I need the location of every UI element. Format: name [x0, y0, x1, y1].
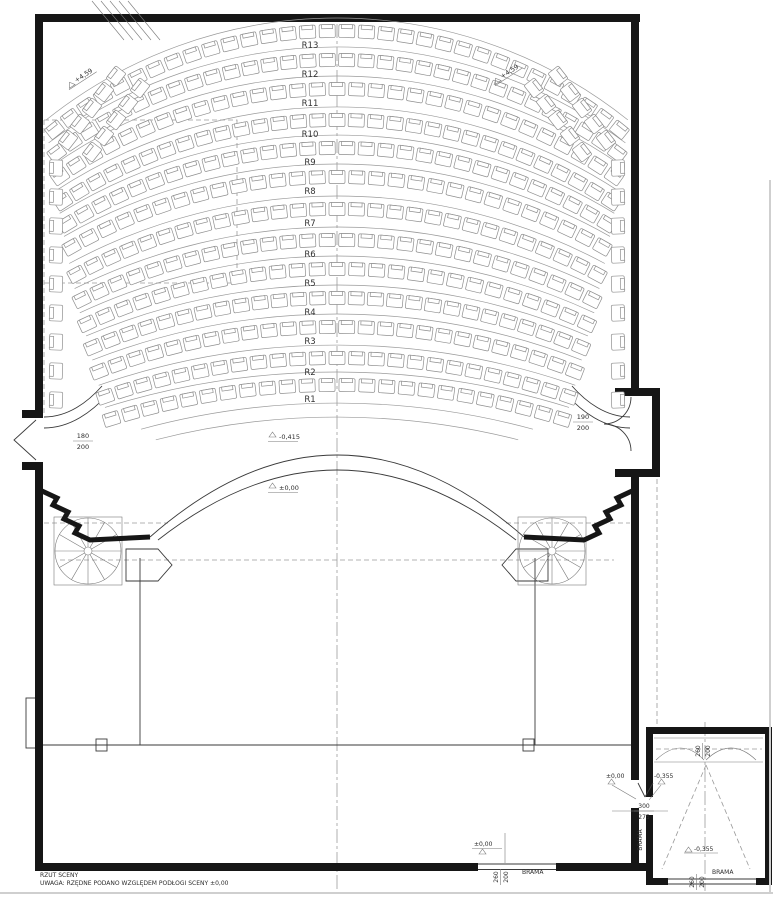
- seat: [175, 222, 194, 239]
- seat: [418, 383, 435, 398]
- seat: [229, 269, 247, 284]
- seat: [271, 293, 288, 307]
- seat: [465, 363, 483, 379]
- seat: [249, 175, 267, 190]
- seat: [611, 305, 625, 321]
- stage-rear-height: 200: [503, 871, 510, 883]
- seat: [163, 255, 182, 272]
- seat: [79, 228, 99, 247]
- seat: [415, 60, 433, 76]
- seat: [309, 83, 326, 97]
- proscenium-steps-left: [42, 491, 150, 540]
- seat: [518, 119, 538, 137]
- seat: [568, 172, 588, 191]
- plan-canvas: R1R2R3R4R5R6R7R8R9R10R11R12R13 +4,59 +4,…: [0, 0, 773, 900]
- seat: [424, 121, 442, 137]
- seat: [127, 179, 147, 197]
- seat: [473, 250, 492, 267]
- seat: [240, 239, 258, 254]
- seat: [121, 405, 140, 422]
- dock-bottom-width: 260: [689, 876, 696, 888]
- seat: [368, 171, 385, 185]
- seat: [171, 192, 190, 209]
- seat: [289, 171, 306, 185]
- dimension-lines: [73, 422, 718, 863]
- drawing-title: RZUT SCENY: [40, 872, 79, 879]
- seat: [194, 304, 212, 320]
- seat: [499, 228, 518, 245]
- seat: [553, 248, 573, 266]
- seat: [269, 85, 286, 100]
- seat: [211, 360, 229, 375]
- seat: [221, 242, 239, 258]
- seat: [299, 142, 316, 156]
- dock-wall-left-lower: [646, 815, 653, 885]
- seat: [213, 125, 232, 141]
- seat: [230, 91, 248, 107]
- seat: [387, 85, 404, 100]
- row-label: R2: [304, 368, 315, 378]
- seat: [473, 335, 491, 351]
- gate-passage-text: BRAMA: [637, 828, 644, 850]
- seat: [611, 392, 625, 408]
- seat: [503, 372, 522, 389]
- left-door-jamb-top: [22, 410, 43, 418]
- seat: [154, 112, 174, 130]
- seat: [535, 241, 555, 259]
- seat: [329, 171, 345, 184]
- seat: [476, 392, 494, 408]
- seat: [367, 203, 384, 217]
- seat: [66, 265, 86, 284]
- dock-top-height: 200: [705, 745, 712, 757]
- seat: [156, 228, 175, 245]
- seat: [133, 293, 152, 311]
- seat: [251, 207, 269, 222]
- seat: [183, 160, 202, 177]
- seat: [194, 130, 213, 147]
- seat: [91, 195, 111, 214]
- seat: [587, 156, 607, 176]
- seat: [232, 121, 250, 137]
- level-flag-icon: [67, 80, 76, 88]
- seat: [290, 292, 307, 306]
- seat: [611, 189, 625, 205]
- seat: [49, 392, 63, 408]
- seat: [571, 338, 591, 356]
- seat: [498, 141, 517, 159]
- seat: [164, 166, 183, 183]
- seat: [398, 381, 415, 395]
- seat: [160, 396, 178, 412]
- seat: [424, 210, 442, 226]
- seat: [457, 388, 475, 404]
- seat: [299, 234, 316, 248]
- row-label: R5: [304, 279, 315, 289]
- seat: [500, 112, 520, 130]
- seat: [461, 130, 480, 147]
- seat: [280, 143, 297, 157]
- seat: [426, 357, 444, 372]
- seat: [496, 396, 514, 412]
- seat: [260, 29, 278, 44]
- seat: [309, 292, 325, 305]
- seat: [482, 106, 501, 123]
- seat: [517, 319, 536, 336]
- dock-top-door-size: 260 200: [695, 743, 712, 759]
- seat: [416, 239, 434, 254]
- floor-plan: R1R2R3R4R5R6R7R8R9R10R11R12R13 +4,59 +4,…: [0, 0, 773, 900]
- seat: [260, 323, 277, 338]
- seat: [510, 261, 529, 278]
- stage-front-level: ±0,00: [279, 484, 299, 492]
- seat: [446, 273, 464, 289]
- seat: [202, 331, 220, 347]
- seat: [109, 187, 129, 206]
- seat: [309, 263, 325, 277]
- seat: [358, 234, 375, 248]
- seat: [319, 24, 335, 37]
- row-label: R4: [304, 308, 315, 318]
- seat: [443, 301, 461, 317]
- seat: [270, 116, 287, 131]
- dock-wall-left-upper: [646, 734, 653, 797]
- seat: [547, 356, 566, 374]
- seat: [348, 292, 364, 305]
- wall-niche-left: [26, 698, 36, 748]
- seat: [86, 172, 106, 191]
- row-label: R6: [304, 250, 315, 260]
- row-label: R7: [304, 219, 315, 229]
- page-edge-bottom: [0, 892, 773, 894]
- seat: [279, 380, 296, 394]
- seat: [61, 237, 81, 256]
- seat: [480, 135, 499, 152]
- seat: [289, 352, 306, 366]
- pit-level-flag-icon: [269, 432, 276, 437]
- seat: [446, 182, 464, 198]
- right-exit-height: 200: [577, 424, 589, 432]
- drawing-note: UWAGA: RZĘDNE PODANO WZGLĘDEM PODŁOGI SC…: [40, 880, 229, 887]
- seat: [229, 178, 247, 194]
- seat: [119, 325, 138, 343]
- seat: [133, 377, 152, 394]
- seat: [499, 313, 518, 330]
- seat: [358, 142, 375, 156]
- seat: [377, 235, 394, 249]
- seat: [329, 263, 345, 276]
- seat: [173, 106, 192, 123]
- seat: [175, 135, 194, 152]
- seat: [454, 155, 473, 172]
- seat: [114, 299, 134, 317]
- seat: [136, 119, 156, 137]
- seat: [89, 362, 109, 380]
- seat: [465, 277, 484, 293]
- seat: [541, 299, 561, 317]
- seat: [454, 331, 472, 347]
- seat: [190, 277, 209, 293]
- seat: [611, 160, 625, 176]
- dock-bottom-door-size: 260 200: [689, 874, 706, 890]
- seat: [396, 57, 414, 72]
- seat: [300, 54, 317, 68]
- seat: [290, 203, 307, 217]
- row-label: R10: [302, 130, 319, 140]
- seat: [164, 339, 183, 356]
- dock-bottom-opening: [668, 879, 756, 884]
- seat: [405, 295, 422, 310]
- seat: [587, 265, 607, 284]
- seat: [269, 265, 286, 280]
- seat: [101, 331, 121, 349]
- row-label: R3: [304, 337, 315, 347]
- seat: [270, 205, 287, 220]
- seat: [49, 276, 63, 292]
- seat: [484, 192, 503, 209]
- seat: [396, 323, 413, 338]
- seat: [95, 307, 115, 325]
- seat: [157, 141, 176, 159]
- seat: [222, 64, 241, 80]
- seat: [416, 148, 434, 164]
- seat: [553, 410, 572, 427]
- wing-marker-right: [502, 549, 548, 581]
- seat: [517, 234, 536, 252]
- row-label: R13: [302, 41, 319, 51]
- seat: [377, 55, 394, 70]
- row-label: R1: [304, 395, 315, 405]
- seat: [300, 321, 317, 335]
- seat: [510, 344, 529, 361]
- wall-left-lower: [35, 462, 43, 863]
- seat: [270, 353, 287, 367]
- seat: [166, 80, 186, 98]
- seat: [175, 309, 194, 325]
- seat: [397, 237, 414, 252]
- seat: [358, 54, 375, 68]
- seat: [529, 350, 548, 367]
- seat: [481, 222, 500, 239]
- dock-level-flag-icon: [685, 847, 692, 852]
- dock-wall-bottom-left: [646, 878, 668, 885]
- seat: [319, 53, 335, 66]
- seat: [249, 267, 267, 282]
- seat: [171, 282, 190, 299]
- seat: [424, 298, 442, 313]
- seat: [90, 282, 110, 300]
- orchestra-pit-level: -0,415: [279, 433, 300, 441]
- seat: [210, 273, 228, 289]
- seat: [251, 295, 268, 310]
- seat: [145, 172, 165, 190]
- seat: [280, 322, 297, 336]
- stage-rear-width: 260: [493, 871, 500, 883]
- wall-right-upper: [631, 14, 639, 388]
- seat: [527, 179, 547, 197]
- seat: [540, 382, 559, 399]
- seat: [348, 114, 364, 128]
- seat: [210, 182, 228, 198]
- seat: [145, 60, 165, 78]
- seat: [349, 263, 365, 277]
- seat: [545, 187, 565, 206]
- seat: [269, 173, 286, 188]
- passage-zero-level: ±0,00: [606, 773, 625, 780]
- stage-rear-level: ±0,00: [474, 841, 493, 848]
- seat: [148, 87, 168, 105]
- seat: [220, 36, 239, 52]
- seat: [462, 304, 480, 320]
- dock-bottom-height: 200: [699, 876, 706, 888]
- seat: [241, 325, 259, 340]
- seat: [66, 156, 86, 176]
- seat: [444, 95, 463, 111]
- seat: [140, 400, 159, 417]
- seat: [611, 363, 625, 379]
- seat: [368, 263, 385, 277]
- seat: [454, 246, 472, 262]
- seat: [388, 265, 405, 280]
- seat: [138, 319, 157, 336]
- seat: [319, 320, 335, 333]
- seat: [199, 388, 217, 404]
- seat: [570, 256, 590, 275]
- seat: [221, 328, 239, 343]
- seat: [407, 267, 425, 282]
- seat: [339, 53, 355, 66]
- seat: [435, 36, 454, 52]
- seat: [261, 57, 279, 72]
- seat: [172, 367, 190, 383]
- seat: [329, 352, 345, 365]
- seat: [559, 388, 578, 406]
- page-edge-right: [769, 180, 771, 892]
- rear-level-flag-icon: [479, 849, 486, 854]
- seat: [103, 163, 123, 182]
- dock-wall-top: [646, 727, 772, 734]
- seat: [72, 290, 92, 309]
- seat: [152, 372, 171, 389]
- seat: [339, 233, 355, 246]
- spiral-stairs: [54, 517, 586, 585]
- seat: [329, 114, 345, 127]
- seat: [182, 46, 201, 63]
- seat: [221, 151, 239, 167]
- seat: [219, 385, 237, 400]
- seat: [348, 83, 365, 97]
- seat: [108, 274, 128, 292]
- seat: [115, 211, 135, 229]
- seat: [190, 186, 209, 203]
- seat: [611, 334, 625, 350]
- balcony-level-left: +4,59: [65, 65, 97, 90]
- seat: [74, 204, 94, 223]
- seat: [114, 382, 133, 399]
- seat: [405, 207, 423, 222]
- gate-passage-label: BRAMA: [637, 828, 644, 850]
- seat: [484, 282, 503, 299]
- seat: [563, 195, 583, 214]
- seat: [259, 381, 276, 395]
- seat: [416, 32, 434, 48]
- dock-curtain-arc-right: [706, 748, 756, 760]
- seat: [83, 338, 103, 356]
- seat: [329, 83, 345, 96]
- seat: [108, 356, 127, 374]
- seat: [339, 379, 355, 392]
- seat: [443, 125, 462, 141]
- seat: [368, 83, 385, 97]
- seat: [96, 388, 115, 406]
- seat: [230, 357, 248, 372]
- seat: [515, 400, 534, 417]
- walls: [22, 14, 772, 885]
- seat: [126, 267, 146, 285]
- seat: [137, 234, 156, 252]
- row-label: R12: [302, 70, 319, 80]
- seat: [592, 237, 612, 256]
- seat: [180, 392, 198, 408]
- seat: [202, 155, 221, 172]
- seat: [201, 40, 220, 57]
- seat: [309, 203, 325, 217]
- seat: [522, 293, 541, 311]
- seat: [77, 315, 97, 333]
- seat: [240, 32, 258, 48]
- seat: [309, 352, 325, 365]
- seat: [299, 25, 316, 39]
- seat: [102, 410, 121, 427]
- seat: [164, 53, 184, 71]
- seat: [472, 160, 491, 177]
- seat: [145, 344, 164, 361]
- seat: [503, 198, 522, 216]
- seat: [251, 118, 269, 133]
- left-exit-height: 200: [77, 443, 89, 451]
- seat: [290, 114, 307, 128]
- seat: [232, 298, 250, 313]
- seat: [49, 160, 63, 176]
- seat: [507, 87, 527, 105]
- seat: [126, 350, 145, 367]
- seat: [280, 235, 297, 249]
- seat: [203, 68, 222, 85]
- seat: [367, 114, 384, 128]
- seat: [446, 360, 464, 375]
- seat: [516, 148, 536, 166]
- wing-marker-left: [126, 549, 172, 581]
- stage-lines: [26, 386, 631, 751]
- seat: [386, 116, 403, 131]
- seat: [405, 118, 423, 133]
- seat: [232, 210, 250, 226]
- seat: [339, 24, 355, 37]
- seat: [454, 40, 473, 57]
- seat: [472, 46, 491, 63]
- seat: [565, 362, 585, 380]
- seat: [443, 213, 461, 229]
- seat: [289, 83, 306, 97]
- seat: [144, 261, 163, 278]
- seat: [368, 352, 385, 366]
- seat: [49, 189, 63, 205]
- seat: [49, 363, 63, 379]
- seat: [280, 55, 297, 70]
- seat: [427, 269, 445, 284]
- seat: [49, 218, 63, 234]
- seat: [407, 175, 425, 190]
